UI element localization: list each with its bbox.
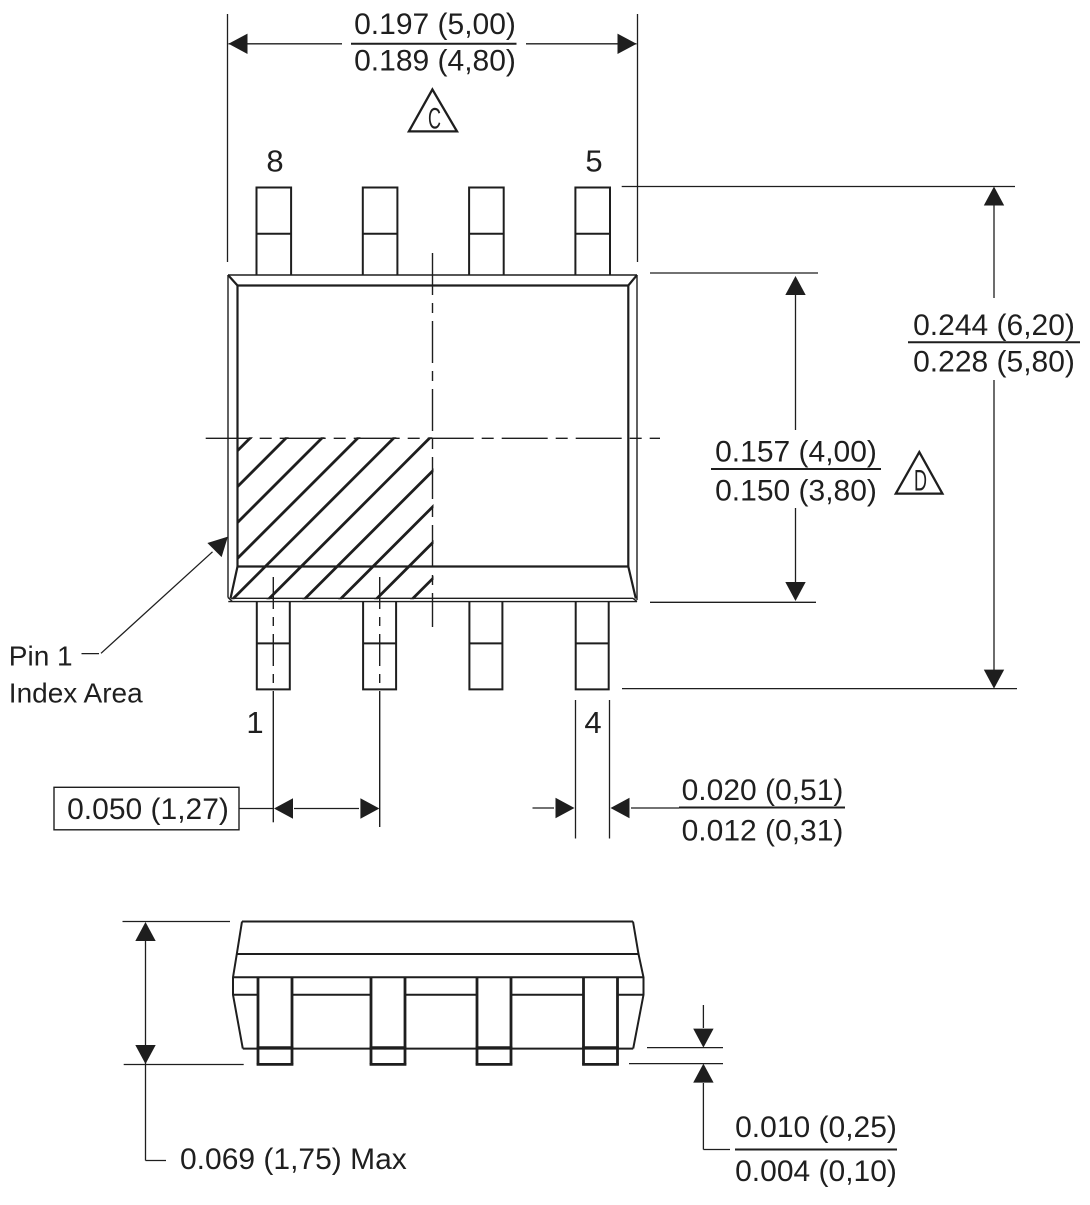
- svg-text:D: D: [914, 465, 927, 498]
- svg-text:4: 4: [584, 705, 601, 740]
- svg-text:0.150 (3,80): 0.150 (3,80): [715, 475, 877, 508]
- svg-text:Pin 1: Pin 1: [9, 641, 73, 672]
- svg-text:1: 1: [246, 705, 263, 740]
- svg-text:0.069 (1,75) Max: 0.069 (1,75) Max: [180, 1143, 407, 1176]
- svg-text:0.244 (6,20): 0.244 (6,20): [913, 309, 1075, 342]
- svg-text:0.228 (5,80): 0.228 (5,80): [913, 346, 1075, 379]
- svg-text:8: 8: [266, 144, 283, 179]
- svg-text:0.012 (0,31): 0.012 (0,31): [682, 815, 844, 848]
- svg-text:0.010 (0,25): 0.010 (0,25): [735, 1111, 897, 1144]
- svg-text:C: C: [428, 103, 441, 136]
- svg-text:0.157 (4,00): 0.157 (4,00): [715, 436, 877, 469]
- svg-text:0.004 (0,10): 0.004 (0,10): [735, 1155, 897, 1188]
- svg-text:Index Area: Index Area: [9, 678, 143, 709]
- svg-text:0.050 (1,27): 0.050 (1,27): [67, 793, 229, 826]
- svg-text:0.197 (5,00): 0.197 (5,00): [354, 8, 516, 41]
- svg-text:0.189 (4,80): 0.189 (4,80): [354, 45, 516, 78]
- svg-text:0.020 (0,51): 0.020 (0,51): [682, 774, 844, 807]
- svg-text:5: 5: [585, 144, 602, 179]
